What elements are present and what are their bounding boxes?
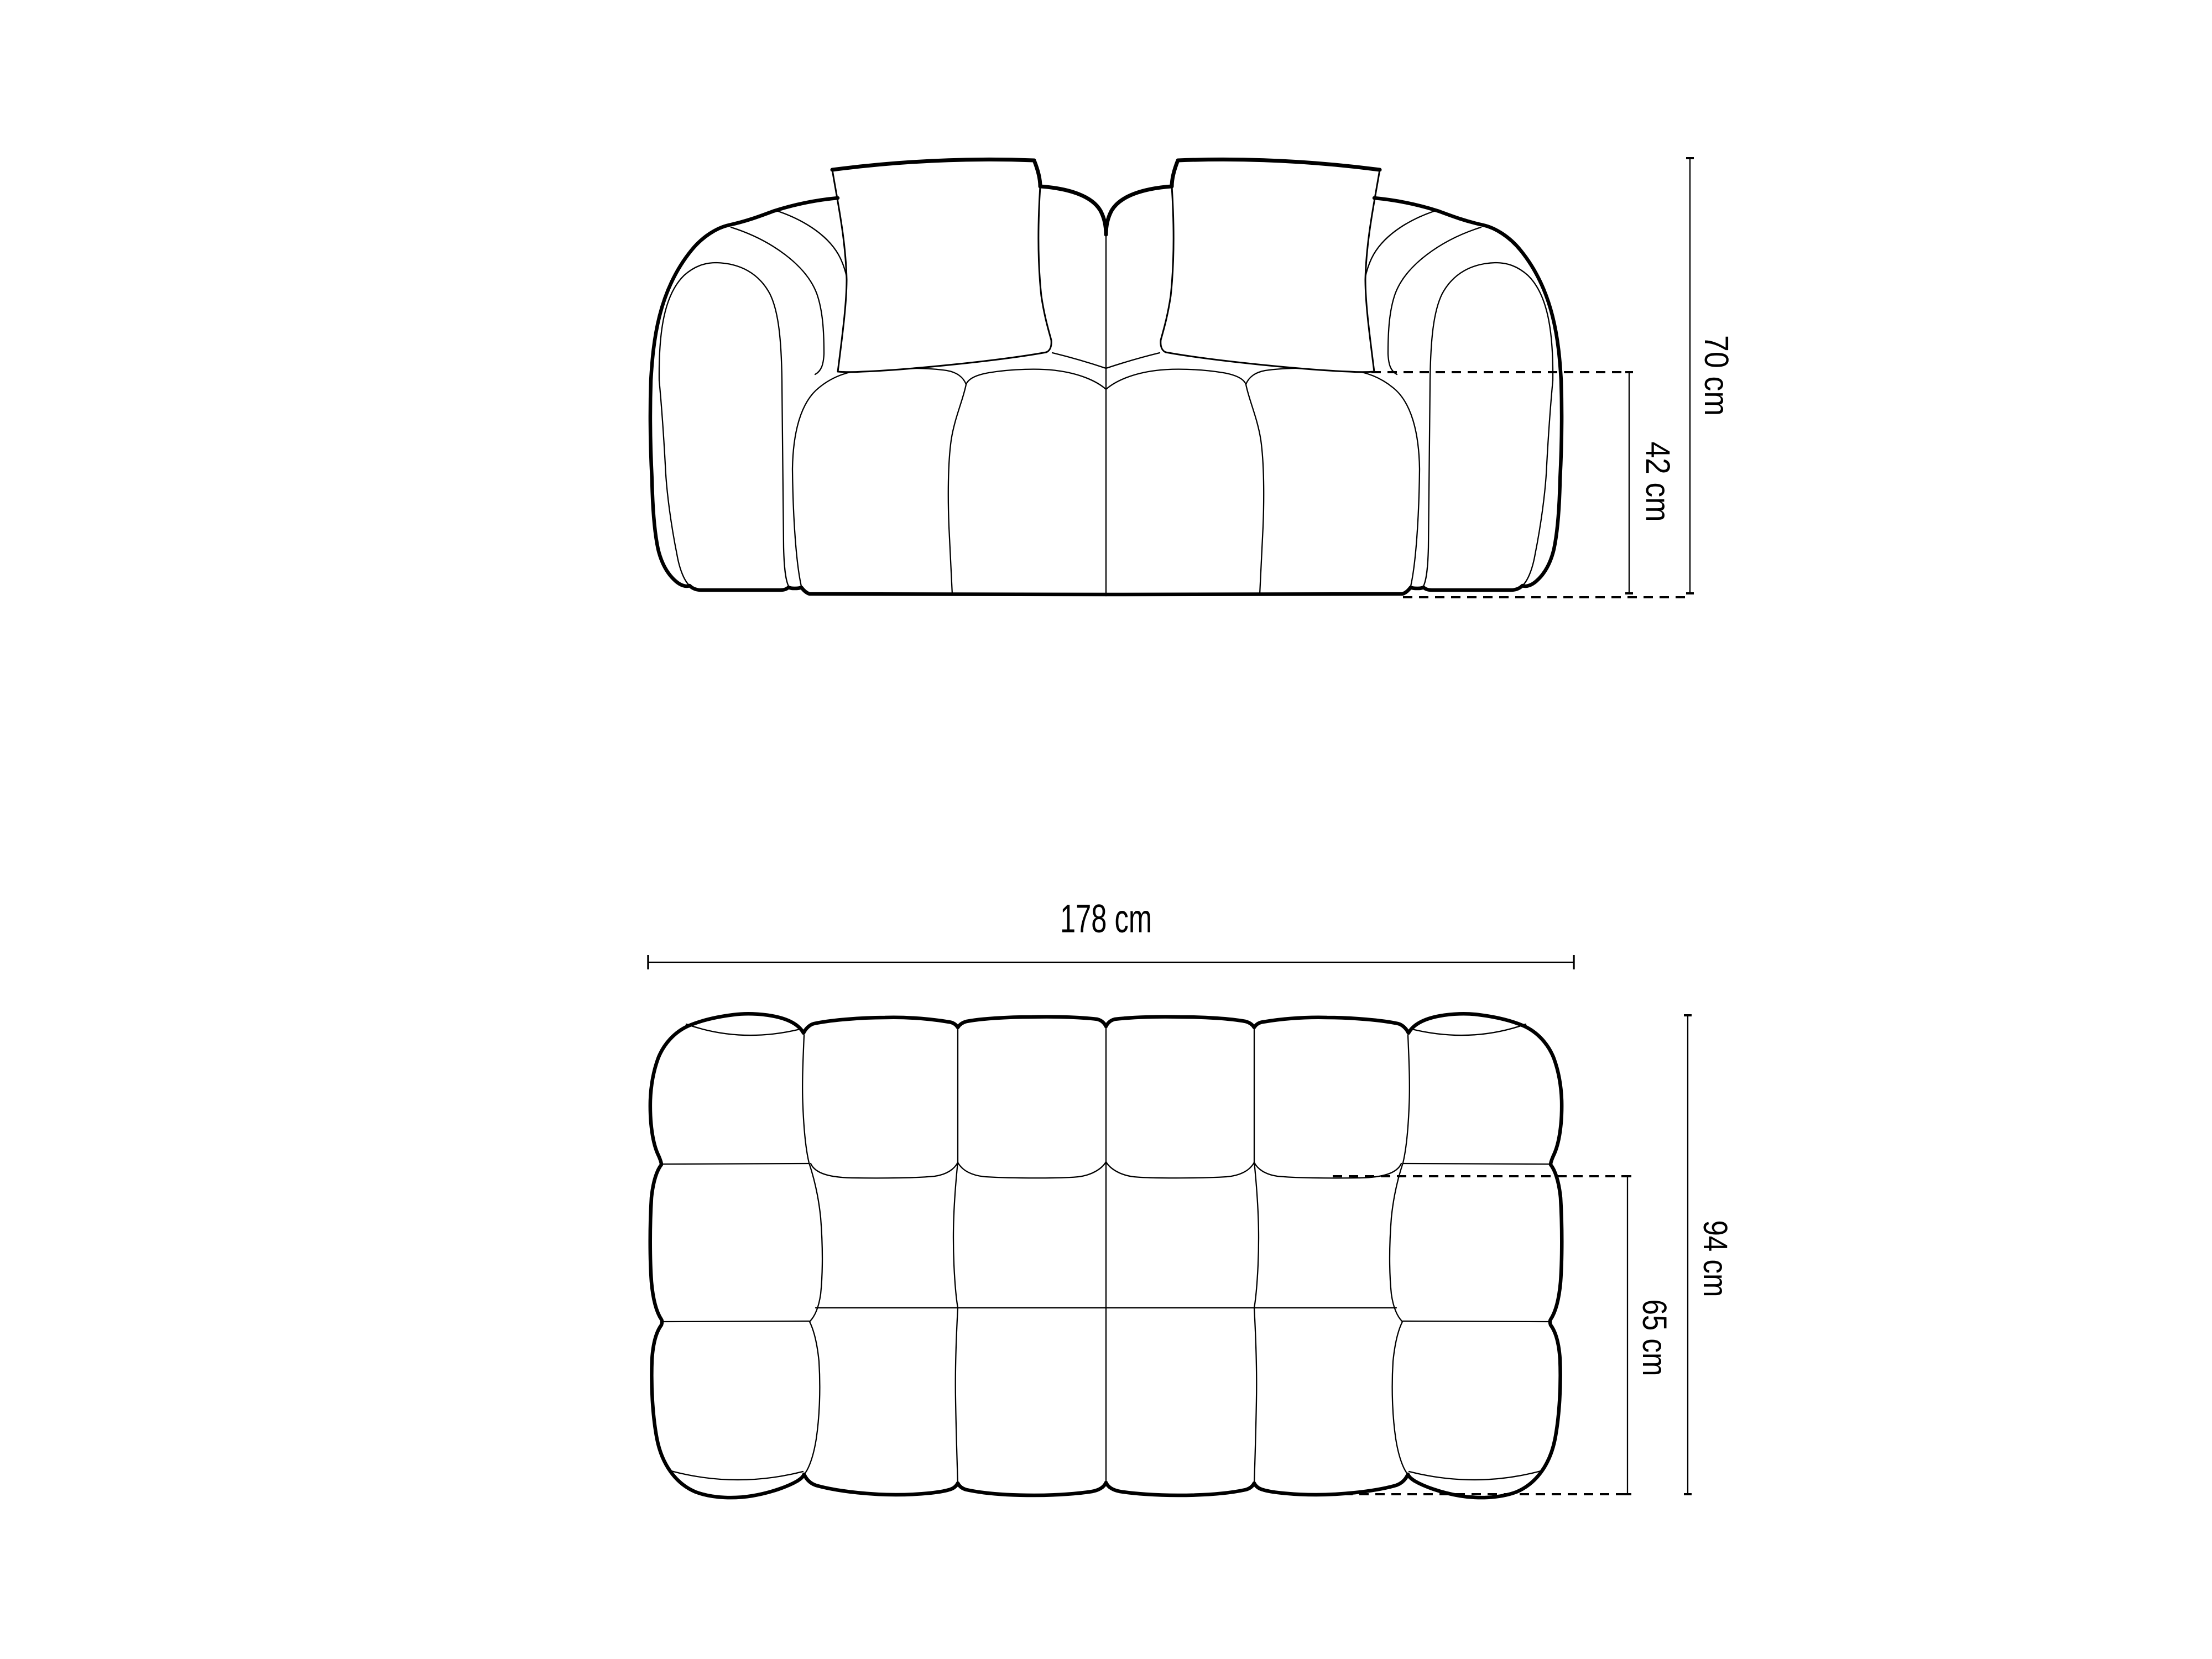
svg-text:178 cm: 178 cm (1060, 897, 1152, 941)
svg-text:70 cm: 70 cm (1698, 335, 1735, 416)
svg-text:94 cm: 94 cm (1697, 1220, 1734, 1297)
svg-text:65 cm: 65 cm (1636, 1300, 1673, 1376)
svg-text:42 cm: 42 cm (1639, 442, 1677, 522)
